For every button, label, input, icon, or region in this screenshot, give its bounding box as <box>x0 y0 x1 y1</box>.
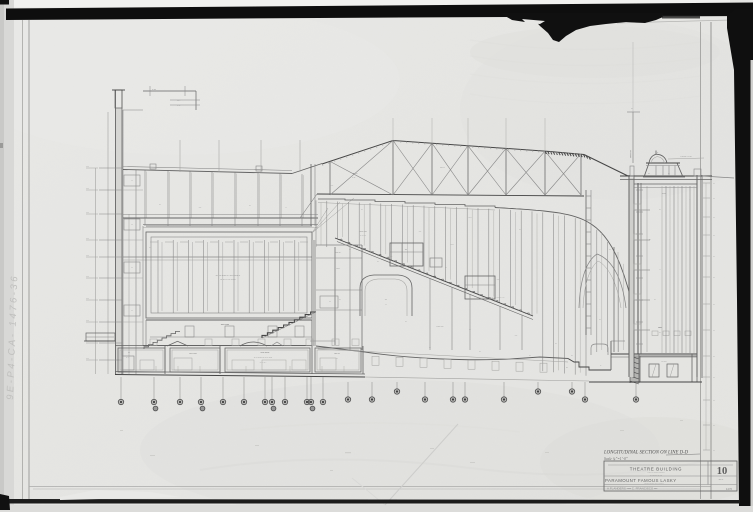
svg-text:▪▪▪: ▪▪▪ <box>713 183 715 185</box>
svg-text:▪▪▪ ▪▪▪▪: ▪▪▪ ▪▪▪▪ <box>352 173 358 175</box>
svg-text:THEATRE BUILDING: THEATRE BUILDING <box>630 467 682 472</box>
svg-text:▪ ▪▪: ▪ ▪▪ <box>86 166 89 168</box>
svg-text:▪▪ ▪▪: ▪▪ ▪▪ <box>177 105 181 107</box>
svg-text:▪▪▪ ▪▪: ▪▪▪ ▪▪ <box>719 479 724 481</box>
svg-text:▪▪ ▪▪▪▪▪▪▪ ▪ ▪▪▪ ▪▪▪: ▪▪ ▪▪▪▪▪▪▪ ▪ ▪▪▪ ▪▪▪ <box>680 156 692 158</box>
svg-text:▪▪▪▪▪ ▪▪▪▪: ▪▪▪▪▪ ▪▪▪▪ <box>437 326 444 328</box>
svg-text:10: 10 <box>717 466 728 477</box>
svg-text:▪▪▪▪▪▪▪ ▪▪▪▪▪▪▪▪ ▪▪▪ ▪▪ ▪▪▪▪▪▪: ▪▪▪▪▪▪▪ ▪▪▪▪▪▪▪▪ ▪▪▪ ▪▪ ▪▪▪▪▪▪▪ <box>644 483 664 485</box>
svg-text:▪▪▪: ▪▪▪ <box>713 377 715 379</box>
svg-text:▪▪▪: ▪▪▪ <box>713 304 715 306</box>
svg-text:▪ ▪▪: ▪ ▪▪ <box>86 358 89 360</box>
svg-text:▪▪▪▪▪▪ ▪▪▪▪: ▪▪▪▪▪▪ ▪▪▪▪ <box>359 231 367 233</box>
svg-text:▪▪▪▪ ▪▪▪: ▪▪▪▪ ▪▪▪ <box>334 353 340 355</box>
svg-text:▪▪▪ ▪: ▪▪▪ ▪ <box>177 100 181 102</box>
svg-text:▪ ▪▪: ▪ ▪▪ <box>86 188 89 190</box>
svg-text:▪▪ ▪▪▪▪: ▪▪ ▪▪▪▪ <box>388 256 393 258</box>
svg-text:▪▪▪▪▪: ▪▪▪▪▪ <box>336 268 340 270</box>
svg-text:▪▪ ▪▪: ▪▪ ▪▪ <box>352 177 356 179</box>
svg-text:▪▪ ▪▪▪: ▪▪ ▪▪▪ <box>152 89 156 91</box>
svg-text:Scale ¼”=1’-0”: Scale ¼”=1’-0” <box>604 457 628 461</box>
svg-text:▪ ▪▪: ▪ ▪▪ <box>86 320 89 322</box>
svg-text:▪▪▪ ▪▪▪▪▪▪▪▪ ▪▪ ▪▪▪▪: ▪▪▪ ▪▪▪▪▪▪▪▪ ▪▪ ▪▪▪▪ <box>650 475 663 477</box>
svg-text:▪▪▪: ▪▪▪ <box>713 235 715 237</box>
svg-text:▪▪▪▪ ▪▪: ▪▪▪▪ ▪▪ <box>440 167 445 169</box>
svg-text:▪▪ ▪▪▪ ▪▪▪: ▪▪ ▪▪▪ ▪▪▪ <box>360 235 366 237</box>
svg-text:▪▪▪▪▪ ▪▪▪▪▪▪: ▪▪▪▪▪ ▪▪▪▪▪▪ <box>261 352 270 354</box>
svg-text:▪▪▪: ▪▪▪ <box>713 400 715 402</box>
svg-text:▪▪▪▪▪: ▪▪▪▪▪ <box>450 244 454 246</box>
svg-text:▪▪▪: ▪▪▪ <box>385 299 387 301</box>
svg-text:1470: 1470 <box>726 487 733 491</box>
svg-text:▪ ▪▪: ▪ ▪▪ <box>86 238 89 240</box>
svg-text:▪▪▪▪▪: ▪▪▪▪▪ <box>468 217 472 219</box>
svg-text:▪▪▪▪ ▪▪: ▪▪▪▪ ▪▪ <box>336 252 341 254</box>
svg-text:▪▪▪▪▪: ▪▪▪▪▪ <box>658 327 662 329</box>
svg-text:PARAMOUNT FAMOUS LASKY: PARAMOUNT FAMOUS LASKY <box>605 478 677 483</box>
svg-text:▪▪▪: ▪▪▪ <box>713 256 715 258</box>
svg-text:▪▪▪: ▪▪▪ <box>128 352 130 354</box>
svg-text:▪▪▪▪▪ ▪▪▪▪▪: ▪▪▪▪▪ ▪▪▪▪▪ <box>189 353 197 355</box>
svg-text:▪▪▪ ▪▪▪▪ ▪▪▪▪▪▪ ▪▪ ▪ ▪▪▪▪ ▪▪▪▪: ▪▪▪ ▪▪▪▪ ▪▪▪▪▪▪ ▪▪ ▪ ▪▪▪▪ ▪▪▪▪▪▪▪ ▪▪ <box>216 275 241 277</box>
svg-text:▪▪▪▪▪▪ ▪▪▪: ▪▪▪▪▪▪ ▪▪▪ <box>631 150 633 158</box>
svg-text:▪ ▪▪: ▪ ▪▪ <box>86 255 89 257</box>
svg-text:▪▪▪: ▪▪▪ <box>713 198 715 200</box>
svg-text:▪▪ ▪▪▪ ▪▪▪▪▪▪ ▪▪▪ ▪▪▪ ▪▪ ▪▪▪▪▪: ▪▪ ▪▪▪ ▪▪▪▪▪▪ ▪▪▪ ▪▪▪ ▪▪ ▪▪▪▪▪ <box>254 357 273 359</box>
svg-text:▪▪▪: ▪▪▪ <box>405 249 407 251</box>
svg-text:▪▪▪▪: ▪▪▪▪ <box>515 335 518 337</box>
svg-text:▪▪▪: ▪▪▪ <box>713 356 715 358</box>
svg-text:▪▪▪ ▪▪▪▪: ▪▪▪ ▪▪▪▪ <box>662 361 667 363</box>
svg-text:▪ ▪▪: ▪ ▪▪ <box>86 298 89 300</box>
svg-text:▪▪▪▪: ▪▪▪▪ <box>497 279 500 281</box>
svg-text:A.FLANDERS ▪▪▪▪ C. FRANCISCO: A.FLANDERS ▪▪▪▪ C. FRANCISCO ▪▪▪ <box>607 487 657 491</box>
svg-text:▪▪▪▪: ▪▪▪▪ <box>199 207 202 209</box>
svg-text:▪▪ ▪: ▪▪ ▪ <box>126 357 129 359</box>
svg-text:▪▪▪ ▪ ▪▪▪▪ ▪▪▪▪▪▪ ▪ ▪▪▪ ▪▪▪▪ ▪: ▪▪▪ ▪ ▪▪▪▪ ▪▪▪▪▪▪ ▪ ▪▪▪ ▪▪▪▪ ▪▪▪▪▪▪▪ ▪ ▪… <box>480 297 505 299</box>
svg-text:▪▪▪▪▪ ▪▪▪▪▪: ▪▪▪▪▪ ▪▪▪▪▪ <box>221 324 230 326</box>
svg-text:▪▪▪: ▪▪▪ <box>713 425 715 427</box>
svg-text:▪▪▪▪▪▪: ▪▪▪▪▪▪ <box>662 193 667 195</box>
svg-text:▪▪ ▪▪▪ ▪▪ ▪: ▪▪ ▪▪▪ ▪▪ ▪ <box>260 362 267 364</box>
svg-text:▪▪▪ ▪▪▪▪ ▪▪ ▪▪▪ ▪▪▪▪▪▪▪: ▪▪▪ ▪▪▪▪ ▪▪ ▪▪▪ ▪▪▪▪▪▪▪ <box>220 279 236 281</box>
svg-text:▪ ▪▪: ▪ ▪▪ <box>86 212 89 214</box>
svg-text:▪▪▪: ▪▪▪ <box>713 217 715 219</box>
svg-text:▪▪▪: ▪▪▪ <box>713 277 715 279</box>
svg-text:▪▪▪▪: ▪▪▪▪ <box>419 231 422 233</box>
svg-text:▪▪▪▪: ▪▪▪▪ <box>331 185 334 187</box>
svg-text:▪▪▪: ▪▪▪ <box>713 330 715 332</box>
svg-text:▪ ▪▪: ▪ ▪▪ <box>86 276 89 278</box>
svg-text:▪▪▪: ▪▪▪ <box>713 450 715 452</box>
